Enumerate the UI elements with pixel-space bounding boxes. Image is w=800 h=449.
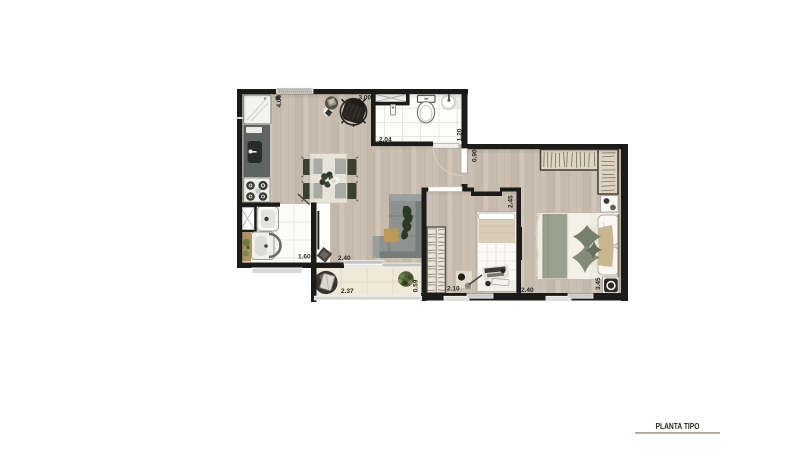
- svg-text:0.90: 0.90: [471, 149, 478, 162]
- svg-text:4.00: 4.00: [276, 94, 283, 107]
- svg-text:2.45: 2.45: [508, 195, 515, 208]
- svg-text:2.10: 2.10: [447, 286, 460, 293]
- svg-text:1.60: 1.60: [298, 253, 311, 260]
- svg-text:0.59: 0.59: [412, 279, 419, 292]
- svg-text:3.45: 3.45: [595, 277, 602, 290]
- svg-text:2.37: 2.37: [341, 288, 354, 295]
- svg-text:1.20: 1.20: [456, 128, 463, 141]
- svg-text:PLANTA TIPO: PLANTA TIPO: [656, 421, 700, 431]
- svg-text:2.40: 2.40: [521, 287, 534, 294]
- svg-text:3.00: 3.00: [359, 95, 372, 102]
- svg-text:2.40: 2.40: [338, 255, 351, 262]
- svg-text:2.04: 2.04: [379, 136, 392, 143]
